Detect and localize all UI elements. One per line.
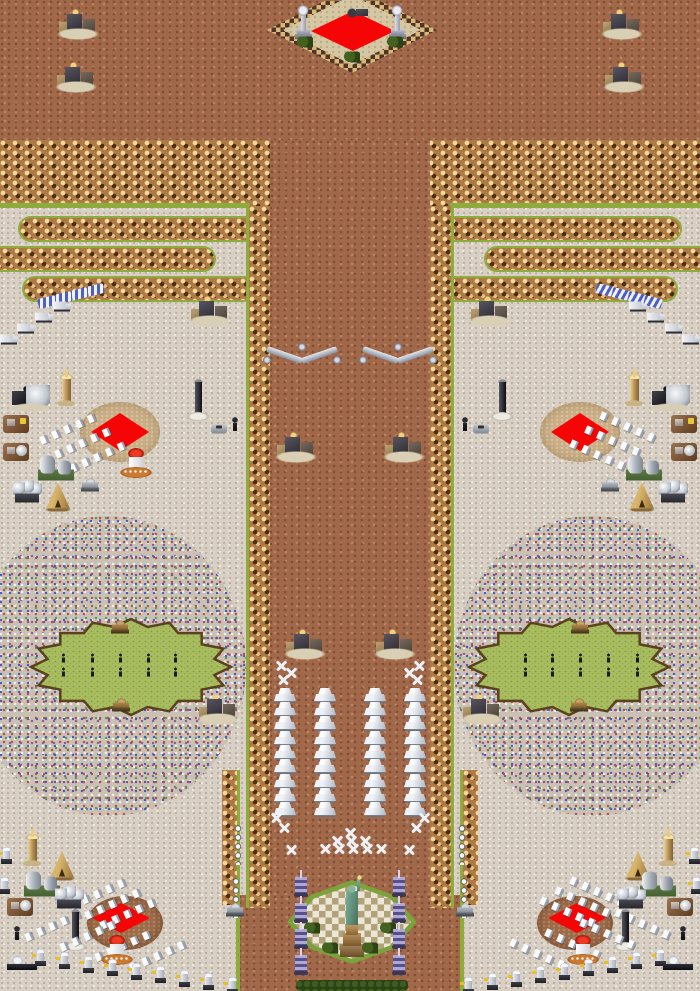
unit-and-building-layer: [0, 0, 700, 991]
soldier-mirror[interactable]: [634, 668, 640, 677]
plane[interactable]: [277, 822, 291, 835]
tank-mirror[interactable]: [456, 904, 474, 917]
obelisk[interactable]: [187, 379, 209, 421]
car[interactable]: [211, 425, 227, 434]
obelisk-mirror[interactable]: [491, 379, 513, 421]
soldier[interactable]: [60, 654, 66, 663]
soldier-mirror[interactable]: [549, 654, 555, 663]
turret-mirror[interactable]: [689, 877, 700, 895]
turret-mirror[interactable]: [629, 952, 643, 970]
wall-chevron[interactable]: [263, 341, 341, 371]
turret[interactable]: [177, 970, 191, 988]
tesla[interactable]: [292, 871, 310, 897]
bush-mirror: [387, 37, 403, 48]
tent[interactable]: [313, 716, 337, 732]
plot-mirror[interactable]: [671, 443, 697, 461]
turret[interactable]: [129, 963, 143, 981]
plane[interactable]: [284, 844, 298, 857]
wreck: [347, 6, 369, 18]
plot[interactable]: [3, 415, 29, 433]
sphere-cluster[interactable]: [54, 887, 84, 910]
soldier[interactable]: [172, 654, 178, 663]
monu-mirror[interactable]: [387, 5, 407, 39]
turret-mirror[interactable]: [485, 973, 499, 991]
ruin-mirror[interactable]: [459, 694, 505, 726]
nuke-mirror[interactable]: [626, 455, 662, 482]
tent-mirror[interactable]: [363, 759, 387, 775]
tank[interactable]: [226, 904, 244, 917]
tesla-mirror[interactable]: [390, 871, 408, 897]
teepee-mirror[interactable]: [629, 483, 655, 512]
plane-mirror[interactable]: [402, 844, 416, 857]
pod-red[interactable]: [120, 448, 152, 478]
turret-mirror[interactable]: [461, 977, 475, 991]
tower-tan-mirror[interactable]: [658, 830, 678, 866]
soldier-mirror[interactable]: [605, 668, 611, 677]
bush-mirror: [362, 943, 378, 954]
soldier-mirror[interactable]: [577, 654, 583, 663]
turret[interactable]: [201, 973, 215, 991]
soldier-mirror[interactable]: [522, 668, 528, 677]
dome-machine-mirror[interactable]: [649, 384, 691, 412]
sphere-cluster-mirror[interactable]: [616, 887, 646, 910]
tent[interactable]: [273, 759, 297, 775]
tower-tan[interactable]: [56, 370, 76, 406]
soldier[interactable]: [172, 668, 178, 677]
tank-mirror[interactable]: [570, 699, 588, 712]
pawn-mirror[interactable]: [460, 417, 470, 431]
turret[interactable]: [225, 977, 239, 991]
nuke[interactable]: [38, 455, 74, 482]
plane[interactable]: [332, 843, 346, 856]
ruin-mirror[interactable]: [381, 432, 427, 464]
turret-mirror[interactable]: [533, 966, 547, 984]
turret[interactable]: [105, 959, 119, 977]
tent-mirror[interactable]: [363, 802, 387, 818]
dome-machine[interactable]: [9, 384, 51, 412]
tank[interactable]: [81, 479, 99, 492]
ruin[interactable]: [53, 62, 99, 94]
tesla-mirror[interactable]: [390, 897, 408, 923]
plane[interactable]: [346, 843, 360, 856]
car-mirror[interactable]: [473, 425, 489, 434]
tent[interactable]: [313, 802, 337, 818]
plot[interactable]: [3, 443, 29, 461]
soldier-mirror[interactable]: [522, 654, 528, 663]
bush: [297, 37, 313, 48]
ruin[interactable]: [273, 432, 319, 464]
soldier-mirror[interactable]: [549, 668, 555, 677]
wall-chevron-mirror[interactable]: [359, 341, 437, 371]
turret[interactable]: [57, 952, 71, 970]
tower-tan[interactable]: [22, 830, 42, 866]
tesla-mirror[interactable]: [390, 949, 408, 975]
sphere-cluster-mirror[interactable]: [658, 481, 688, 504]
turret[interactable]: [81, 956, 95, 974]
tesla-mirror[interactable]: [390, 923, 408, 949]
tent-mirror[interactable]: [403, 759, 427, 775]
soldier-mirror[interactable]: [634, 654, 640, 663]
truck-mirror[interactable]: [665, 323, 683, 334]
turret[interactable]: [153, 966, 167, 984]
soldier[interactable]: [60, 668, 66, 677]
truck-mirror[interactable]: [682, 334, 700, 345]
turret[interactable]: [0, 877, 11, 895]
truck[interactable]: [0, 334, 18, 345]
tent-mirror[interactable]: [403, 716, 427, 732]
tent[interactable]: [313, 759, 337, 775]
ruin-mirror[interactable]: [599, 9, 645, 41]
plane-mirror[interactable]: [409, 822, 423, 835]
plot[interactable]: [7, 898, 33, 916]
soldier[interactable]: [89, 654, 95, 663]
tent-mirror[interactable]: [363, 716, 387, 732]
tank-mirror[interactable]: [601, 479, 619, 492]
unit-stack-mirror[interactable]: [457, 825, 467, 865]
truck[interactable]: [53, 301, 71, 312]
boat-mirror[interactable]: [663, 955, 693, 971]
turret[interactable]: [0, 847, 13, 865]
tank-mirror[interactable]: [571, 621, 589, 634]
game-map: Isometric RTS battle map (mirror-symmetr…: [0, 0, 700, 991]
soldier[interactable]: [145, 654, 151, 663]
tent[interactable]: [273, 716, 297, 732]
boat[interactable]: [7, 955, 37, 971]
plane[interactable]: [360, 843, 374, 856]
tank[interactable]: [112, 699, 130, 712]
bush: [344, 52, 360, 63]
tank[interactable]: [111, 621, 129, 634]
tower-tan-mirror[interactable]: [624, 370, 644, 406]
tesla[interactable]: [292, 949, 310, 975]
ruin-mirror[interactable]: [601, 62, 647, 94]
truck[interactable]: [35, 312, 53, 323]
tesla[interactable]: [292, 923, 310, 949]
monu[interactable]: [293, 5, 313, 39]
truck-mirror[interactable]: [629, 301, 647, 312]
ruin[interactable]: [187, 296, 233, 328]
teepee[interactable]: [45, 483, 71, 512]
pawn[interactable]: [230, 417, 240, 431]
ruin[interactable]: [55, 9, 101, 41]
ruin[interactable]: [282, 629, 328, 661]
soldier[interactable]: [117, 654, 123, 663]
truck[interactable]: [17, 323, 35, 334]
ruin-mirror[interactable]: [467, 296, 513, 328]
ruin-mirror[interactable]: [372, 629, 418, 661]
soldier[interactable]: [89, 668, 95, 677]
soldier[interactable]: [145, 668, 151, 677]
turret-mirror[interactable]: [557, 963, 571, 981]
sphere-cluster[interactable]: [12, 481, 42, 504]
turret-mirror[interactable]: [509, 970, 523, 988]
pawn[interactable]: [12, 926, 22, 940]
soldier-mirror[interactable]: [605, 654, 611, 663]
tesla[interactable]: [292, 897, 310, 923]
plane[interactable]: [276, 674, 290, 687]
plane-mirror[interactable]: [410, 674, 424, 687]
plane[interactable]: [318, 843, 332, 856]
turret-mirror[interactable]: [605, 956, 619, 974]
plot-mirror[interactable]: [667, 898, 693, 916]
unit-stack[interactable]: [233, 825, 243, 865]
pawn-mirror[interactable]: [678, 926, 688, 940]
ruin[interactable]: [195, 694, 241, 726]
turret-mirror[interactable]: [581, 959, 595, 977]
turret-mirror[interactable]: [687, 847, 700, 865]
plot-mirror[interactable]: [671, 415, 697, 433]
bush: [322, 943, 338, 954]
plane[interactable]: [374, 843, 388, 856]
soldier[interactable]: [117, 668, 123, 677]
truck-mirror[interactable]: [647, 312, 665, 323]
soldier-mirror[interactable]: [577, 668, 583, 677]
